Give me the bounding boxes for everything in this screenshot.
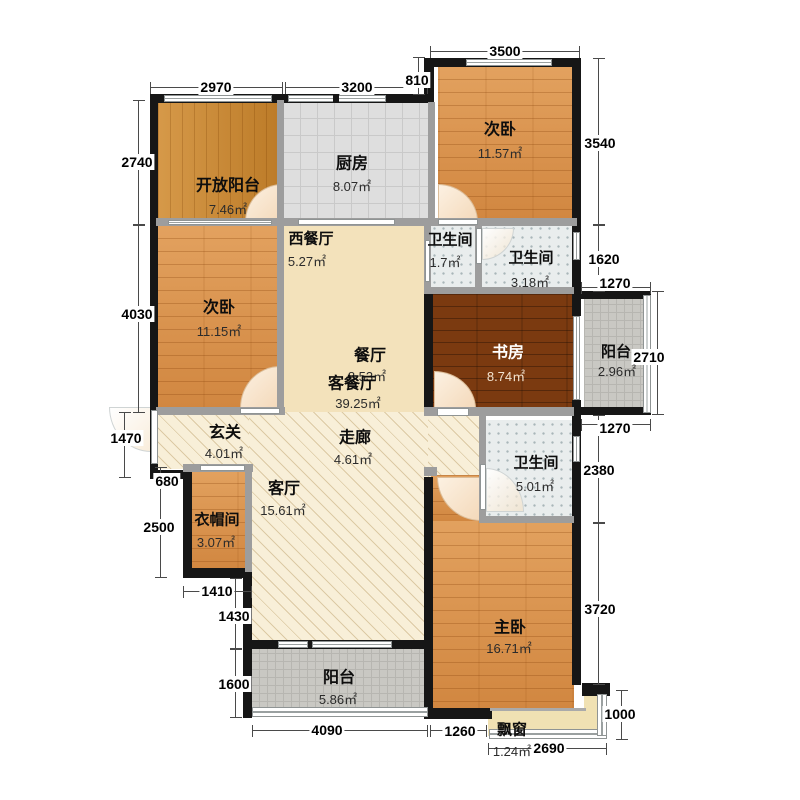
partition-wall [428, 102, 435, 222]
window [573, 436, 580, 462]
dim-label-top-810: 810 [403, 72, 430, 88]
room-area-study: 8.74㎡ [487, 370, 525, 384]
room-area-bath-large: 5.01㎡ [516, 480, 554, 494]
room-area-foyer: 4.01㎡ [205, 447, 243, 461]
balcony-door-opening [312, 641, 392, 648]
cloakroom-sliding-door [200, 465, 245, 471]
bath-mid-door-leaf [476, 228, 482, 264]
balcony-door-window [573, 316, 580, 400]
door-opening [298, 219, 395, 225]
room-area-balcony-right: 2.96㎡ [598, 365, 636, 379]
door-opening [438, 219, 478, 225]
wall [183, 468, 192, 572]
room-label-dining: 餐厅 [354, 348, 386, 365]
dim-label-left-2500: 2500 [141, 519, 176, 535]
room-label-balcony-bottom: 阳台 [323, 670, 355, 687]
dim-label-left-1410: 1410 [199, 583, 234, 599]
window [252, 707, 428, 717]
bath-large-door-leaf [480, 464, 486, 510]
window [573, 232, 580, 260]
dim-label-top-3200: 3200 [339, 79, 374, 95]
dim-label-right-1000: 1000 [602, 706, 637, 722]
window [168, 220, 272, 225]
dim-label-bottom-2690: 2690 [531, 740, 566, 756]
room-living-floor [249, 412, 430, 645]
room-label-kitchen: 厨房 [336, 156, 368, 173]
room-label-bedroom-left: 次卧 [203, 300, 235, 317]
room-area-living-dining: 39.25㎡ [335, 397, 381, 411]
partition-wall [424, 287, 574, 294]
wall [424, 292, 433, 412]
room-area-balcony-bottom: 5.86㎡ [319, 693, 357, 707]
room-label-bay-window: 飘窗 [497, 722, 527, 739]
room-area-bath-small: 1.7㎡ [429, 256, 460, 270]
dim-label-bottom-1260: 1260 [442, 723, 477, 739]
room-label-corridor: 走廊 [339, 430, 371, 447]
room-label-bath-small: 卫生间 [427, 232, 472, 249]
balcony-door-opening [278, 641, 308, 648]
dim-label-right-1270-top: 1270 [597, 275, 632, 291]
room-area-living: 15.61㎡ [260, 504, 306, 518]
room-label-west-dining: 西餐厅 [288, 231, 333, 248]
dim-label-right-3720: 3720 [582, 601, 617, 617]
floor-plan: 2970 3200 3500 810 2740 4030 1470 680 25… [0, 0, 800, 800]
wall [581, 291, 651, 299]
partition-wall [245, 468, 252, 572]
entrance-door-leaf [151, 410, 158, 464]
partition-wall [277, 225, 284, 415]
dim-label-left-680: 680 [153, 473, 180, 489]
dim-label-left-1600: 1600 [216, 676, 251, 692]
room-label-bath-large: 卫生间 [513, 455, 558, 472]
dim-label-right-2710: 2710 [631, 349, 666, 365]
room-label-living-dining: 客餐厅 [328, 376, 376, 393]
room-area-west-dining: 5.27㎡ [288, 255, 326, 269]
window [164, 95, 272, 102]
room-area-bath-mid: 3.18㎡ [511, 276, 549, 290]
room-label-foyer: 玄关 [209, 425, 241, 442]
room-area-bedroom-left: 11.15㎡ [197, 325, 242, 339]
room-label-master-bedroom: 主卧 [494, 620, 526, 637]
door-opening [240, 408, 280, 414]
room-label-open-balcony: 开放阳台 [196, 178, 260, 195]
dim-label-left-1470: 1470 [108, 430, 143, 446]
room-label-balcony-right: 阳台 [601, 344, 631, 361]
room-area-corridor: 4.61㎡ [334, 453, 372, 467]
partition-wall [277, 100, 284, 225]
wall [572, 415, 581, 523]
dim-label-left-2740: 2740 [119, 154, 154, 170]
wall [572, 295, 581, 316]
dim-label-top-3500: 3500 [487, 43, 522, 59]
partition-wall [485, 516, 574, 523]
dim-label-left-1430: 1430 [216, 608, 251, 624]
dim-label-left-4030: 4030 [119, 306, 154, 322]
room-label-living: 客厅 [268, 481, 300, 498]
dim-label-right-3540: 3540 [582, 135, 617, 151]
window [466, 59, 552, 66]
dim-label-top-2970: 2970 [198, 79, 233, 95]
room-area-bay-window: 1.24㎡ [493, 745, 531, 759]
window-pier [333, 94, 339, 103]
room-label-bedroom-top: 次卧 [484, 122, 516, 139]
wall [581, 407, 651, 415]
partition-wall [424, 467, 437, 476]
dim-label-bottom-4090: 4090 [309, 722, 344, 738]
dim-label-right-1620: 1620 [586, 251, 621, 267]
room-label-cloakroom: 衣帽间 [194, 512, 239, 529]
dim-label-right-2380: 2380 [581, 462, 616, 478]
study-door-leaf [437, 408, 469, 416]
room-master-bedroom-floor [431, 519, 574, 711]
room-area-open-balcony: 7.46㎡ [209, 203, 247, 217]
wall [424, 477, 433, 719]
room-area-master-bedroom: 16.71㎡ [486, 642, 532, 656]
room-area-bedroom-top: 11.57㎡ [478, 147, 523, 161]
wall [572, 523, 581, 685]
wall [183, 568, 252, 578]
wall [427, 708, 492, 719]
room-label-study: 书房 [492, 345, 524, 362]
room-area-cloakroom: 3.07㎡ [197, 536, 235, 550]
partition-wall [490, 708, 586, 711]
room-area-kitchen: 8.07㎡ [333, 180, 371, 194]
dim-label-right-1270-bottom: 1270 [597, 420, 632, 436]
room-label-bath-mid: 卫生间 [508, 250, 553, 267]
